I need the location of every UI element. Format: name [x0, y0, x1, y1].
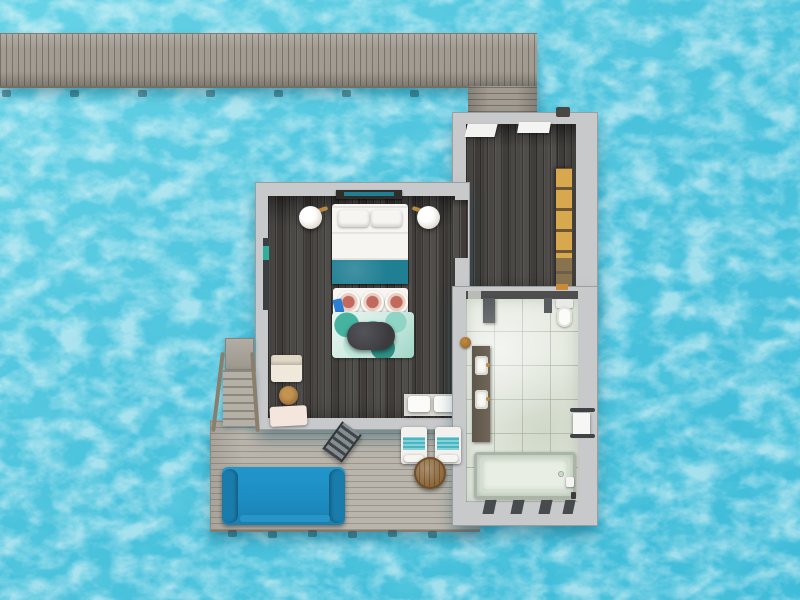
- deck-piling: [268, 531, 277, 538]
- jetty-piling: [138, 90, 147, 97]
- jetty-piling: [206, 90, 215, 97]
- jetty-boardwalk: [0, 33, 537, 88]
- toilet-partition: [544, 298, 552, 313]
- console-decor: [344, 192, 394, 196]
- bath-handle: [571, 492, 576, 499]
- slatted-floor: [470, 500, 576, 514]
- bedroom-corridor-opening: [452, 200, 468, 258]
- jetty-piling: [410, 90, 419, 97]
- wall-lamp-left: [299, 206, 322, 229]
- lounger-towel-2: [437, 437, 459, 450]
- faucet-1: [486, 363, 490, 367]
- daybed-seat-edge: [240, 515, 330, 522]
- bed-pillow-left: [338, 210, 369, 227]
- round-cushion: [361, 291, 384, 314]
- deck-piling: [428, 531, 437, 538]
- bathroom-door-opening: [468, 291, 481, 299]
- round-cushion: [385, 291, 408, 314]
- wooden-stool: [460, 337, 471, 348]
- roof-eave-panel: [464, 124, 497, 137]
- entry-door-detail: [556, 107, 570, 117]
- wall-lamp-right: [417, 206, 440, 229]
- faucet-2: [486, 397, 490, 401]
- jetty-piling: [342, 90, 351, 97]
- teal-bed-runner: [332, 260, 408, 284]
- deck-piling: [228, 530, 237, 537]
- lounger-towel-1: [403, 437, 425, 450]
- hanging-towel: [573, 413, 590, 435]
- bath-faucet: [566, 477, 574, 487]
- toilet-bowl: [557, 307, 572, 327]
- towel-bar-2: [570, 434, 595, 438]
- deck-piling: [308, 530, 317, 537]
- deck-piling: [388, 530, 397, 537]
- bathtub-basin: [482, 459, 568, 491]
- daybed-armrest-right: [329, 469, 345, 523]
- oval-ottoman: [347, 322, 395, 350]
- towel-bar-1: [570, 408, 595, 412]
- lounge-cushion: [270, 405, 308, 427]
- shelf-accent: [556, 284, 568, 290]
- folded-towels: [408, 396, 430, 412]
- jetty-piling: [2, 90, 11, 97]
- daybed-armrest-left: [222, 469, 238, 523]
- round-deck-table: [414, 457, 446, 489]
- deck-piling: [348, 531, 357, 538]
- round-side-table: [279, 386, 298, 405]
- wall-art: [263, 246, 269, 260]
- villa-floorplan: [0, 0, 800, 600]
- jetty-piling: [274, 90, 283, 97]
- jetty-piling: [70, 90, 79, 97]
- roof-eave-panel: [517, 122, 551, 133]
- bathtub-drain: [558, 471, 564, 477]
- shower-partition: [483, 298, 495, 323]
- armchair-backrest: [271, 355, 302, 365]
- bed-pillow-right: [371, 210, 402, 227]
